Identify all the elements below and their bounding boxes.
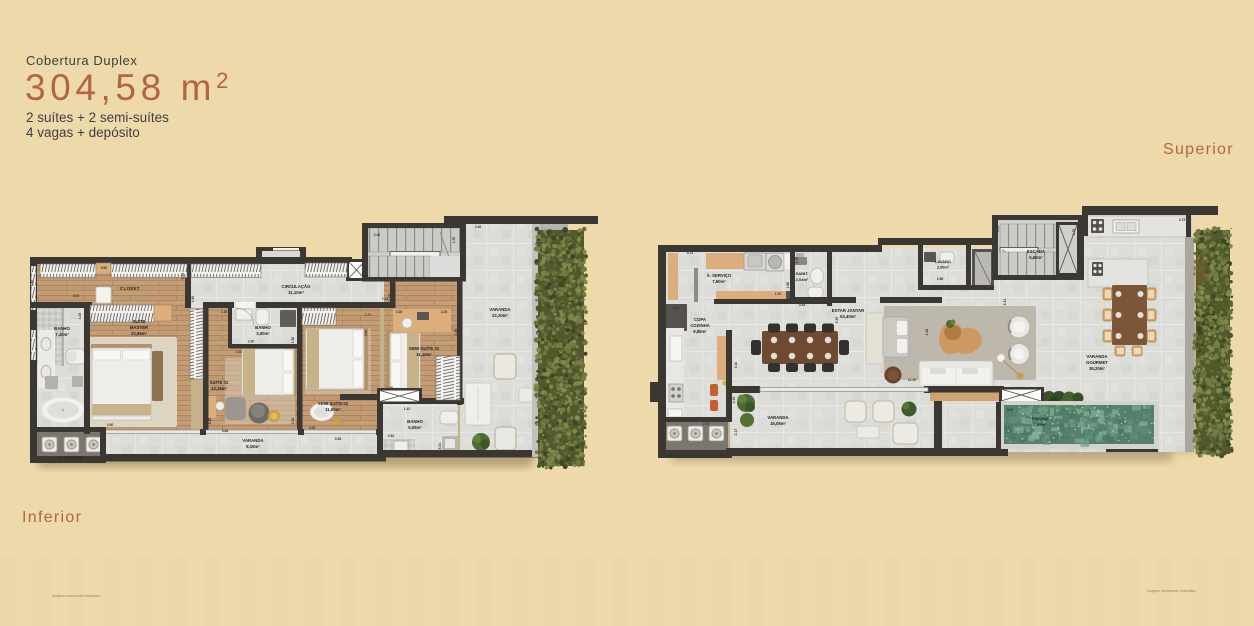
- svg-text:2.17: 2.17: [734, 429, 738, 436]
- svg-text:1.35: 1.35: [452, 237, 456, 244]
- svg-text:7.22: 7.22: [382, 297, 389, 301]
- svg-text:36,20m²: 36,20m²: [1089, 366, 1106, 371]
- svg-text:23,85m²: 23,85m²: [131, 331, 148, 336]
- svg-text:11,10m²: 11,10m²: [288, 290, 304, 295]
- svg-text:1.76: 1.76: [1072, 229, 1076, 236]
- svg-text:SUÍTE: SUÍTE: [133, 319, 146, 324]
- svg-text:COPA: COPA: [694, 317, 706, 322]
- svg-text:4.25: 4.25: [78, 313, 82, 320]
- svg-text:2.53: 2.53: [703, 422, 710, 426]
- svg-text:4.36: 4.36: [454, 329, 458, 336]
- svg-text:1.80: 1.80: [380, 418, 384, 425]
- svg-text:3.89: 3.89: [659, 360, 663, 367]
- svg-text:1.80: 1.80: [786, 282, 790, 289]
- svg-text:3.30: 3.30: [996, 226, 1000, 233]
- svg-text:1.48: 1.48: [221, 310, 228, 314]
- svg-text:5,05m²: 5,05m²: [408, 425, 422, 430]
- svg-text:2.30: 2.30: [248, 340, 255, 344]
- svg-text:BANHO: BANHO: [407, 419, 423, 424]
- svg-text:2.48: 2.48: [925, 329, 929, 336]
- svg-text:BANHO: BANHO: [54, 326, 70, 331]
- svg-text:LAVABO: LAVABO: [935, 259, 951, 264]
- svg-text:SEMI SUÍTE 02: SEMI SUÍTE 02: [318, 401, 349, 406]
- svg-text:2.82: 2.82: [388, 434, 395, 438]
- svg-text:11,10m²: 11,10m²: [416, 352, 432, 357]
- svg-text:1.70: 1.70: [659, 259, 663, 266]
- svg-text:SUÍTE 01: SUÍTE 01: [210, 380, 229, 385]
- svg-text:5.65: 5.65: [1007, 408, 1014, 412]
- svg-text:PISCINA: PISCINA: [1032, 416, 1048, 421]
- svg-text:3,00m²: 3,00m²: [256, 331, 270, 336]
- svg-text:1.15: 1.15: [918, 254, 922, 261]
- svg-text:1.50: 1.50: [937, 277, 944, 281]
- svg-text:2.10: 2.10: [1084, 221, 1088, 228]
- svg-text:2.32: 2.32: [833, 300, 840, 304]
- svg-text:3.88: 3.88: [222, 429, 229, 433]
- svg-text:2.77: 2.77: [365, 313, 372, 317]
- svg-text:4.25: 4.25: [208, 418, 212, 425]
- svg-text:1.00: 1.00: [388, 294, 392, 301]
- svg-text:11,60m²: 11,60m²: [325, 407, 341, 412]
- svg-text:8.31: 8.31: [438, 443, 442, 450]
- svg-text:1.42: 1.42: [404, 407, 411, 411]
- svg-text:4.74: 4.74: [687, 251, 694, 255]
- svg-text:VARANDA: VARANDA: [767, 415, 788, 420]
- svg-text:1.60: 1.60: [191, 296, 195, 303]
- svg-text:1.30: 1.30: [291, 337, 295, 344]
- svg-text:SANIT.: SANIT.: [796, 271, 809, 276]
- svg-text:1.20: 1.20: [775, 292, 782, 296]
- svg-text:9,85m²: 9,85m²: [693, 329, 707, 334]
- svg-text:11.30: 11.30: [908, 378, 916, 382]
- svg-text:2.85: 2.85: [291, 418, 295, 425]
- svg-text:2.40: 2.40: [673, 306, 680, 310]
- svg-text:2,04m²: 2,04m²: [796, 277, 809, 282]
- svg-text:2.00: 2.00: [73, 294, 80, 298]
- svg-text:3.10: 3.10: [734, 362, 738, 369]
- svg-text:5.60: 5.60: [101, 266, 108, 270]
- svg-text:5,60m²: 5,60m²: [1029, 255, 1043, 260]
- svg-text:ESTAR JANTAR: ESTAR JANTAR: [832, 308, 865, 313]
- svg-text:Á. SERVIÇO: Á. SERVIÇO: [707, 273, 732, 278]
- svg-text:VARANDA: VARANDA: [1086, 354, 1107, 359]
- svg-text:7,60m²: 7,60m²: [712, 279, 726, 284]
- svg-text:VARANDA: VARANDA: [242, 438, 263, 443]
- svg-text:7,40m²: 7,40m²: [55, 332, 69, 337]
- svg-text:53,40m²: 53,40m²: [840, 314, 857, 319]
- svg-text:2.30: 2.30: [374, 233, 381, 237]
- svg-text:7,65m²: 7,65m²: [1034, 422, 1047, 427]
- svg-text:5.95: 5.95: [181, 273, 185, 280]
- svg-text:ESCADA: ESCADA: [1027, 249, 1045, 254]
- svg-text:1.60: 1.60: [31, 280, 35, 287]
- svg-text:MASTER: MASTER: [130, 325, 149, 330]
- svg-text:CIRCULAÇÃO: CIRCULAÇÃO: [282, 284, 312, 289]
- svg-text:9.58: 9.58: [335, 437, 342, 441]
- svg-text:1.70: 1.70: [795, 257, 799, 264]
- svg-text:3.75: 3.75: [1179, 218, 1186, 222]
- svg-text:2.10: 2.10: [873, 249, 880, 253]
- svg-text:13,15m²: 13,15m²: [211, 386, 228, 391]
- svg-text:3.50: 3.50: [107, 423, 114, 427]
- svg-text:9.78: 9.78: [929, 450, 936, 454]
- svg-text:COZINHA: COZINHA: [690, 323, 710, 328]
- svg-text:CLOSET: CLOSET: [120, 286, 140, 291]
- svg-text:SEMI-SUÍTE 01: SEMI-SUÍTE 01: [409, 346, 440, 351]
- svg-text:BANHO: BANHO: [255, 325, 271, 330]
- svg-text:VARANDA: VARANDA: [489, 307, 510, 312]
- svg-text:2.40: 2.40: [236, 350, 243, 354]
- svg-text:2.35: 2.35: [835, 317, 839, 324]
- svg-text:1.40: 1.40: [387, 386, 394, 390]
- svg-text:2.46: 2.46: [475, 225, 482, 229]
- svg-text:15,05m²: 15,05m²: [770, 421, 787, 426]
- svg-text:22,20m²: 22,20m²: [492, 313, 509, 318]
- svg-text:A. TÉCNICA: A. TÉCNICA: [60, 455, 83, 460]
- svg-text:2.60: 2.60: [309, 426, 316, 430]
- svg-text:GOURMET: GOURMET: [1086, 360, 1108, 365]
- svg-text:2.35: 2.35: [441, 310, 448, 314]
- svg-text:4.15: 4.15: [732, 397, 736, 404]
- svg-text:6.21: 6.21: [1003, 299, 1007, 306]
- svg-text:8,15m²: 8,15m²: [246, 444, 260, 449]
- svg-text:2.85: 2.85: [364, 330, 368, 337]
- svg-text:2.36: 2.36: [396, 310, 403, 314]
- svg-text:2,00m²: 2,00m²: [937, 265, 950, 270]
- svg-text:3.45: 3.45: [799, 303, 806, 307]
